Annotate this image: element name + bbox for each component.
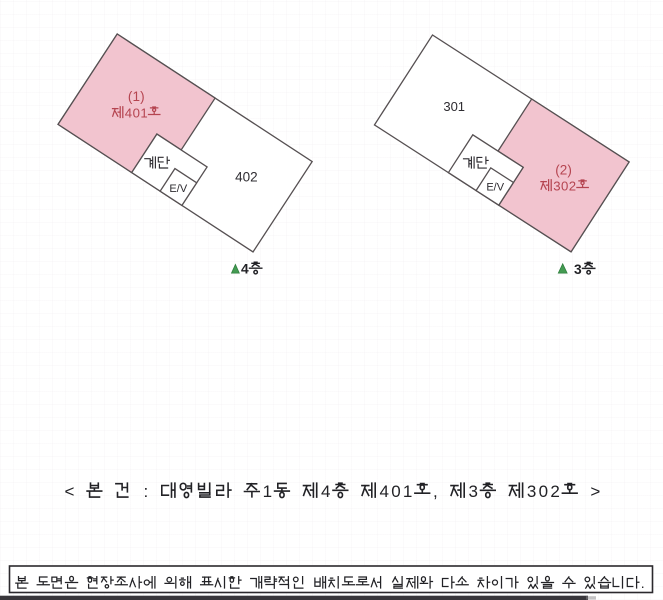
svg-text:): ) [140, 89, 145, 104]
svg-text:3: 3 [574, 262, 582, 277]
svg-text:E/V: E/V [486, 182, 504, 194]
svg-text:,: , [433, 482, 438, 501]
svg-text:0: 0 [133, 105, 140, 120]
svg-text:1: 1 [133, 89, 141, 104]
svg-text:.: . [641, 575, 645, 591]
svg-text::: : [144, 482, 149, 501]
svg-text:): ) [567, 163, 572, 178]
svg-text:3: 3 [527, 482, 536, 501]
svg-text:0: 0 [391, 482, 400, 501]
svg-text:E/V: E/V [169, 183, 187, 195]
svg-text:3: 3 [553, 178, 560, 193]
svg-text:3: 3 [469, 482, 478, 501]
svg-text:2: 2 [560, 163, 568, 178]
svg-text:4: 4 [241, 262, 249, 277]
svg-text:0: 0 [561, 178, 568, 193]
svg-text:<: < [65, 482, 75, 501]
svg-text:4: 4 [125, 105, 132, 120]
svg-text:402: 402 [235, 170, 258, 185]
svg-text:0: 0 [539, 482, 548, 501]
svg-text:4: 4 [321, 482, 330, 501]
svg-text:1: 1 [263, 482, 272, 501]
svg-text:>: > [590, 482, 600, 501]
svg-text:301: 301 [443, 99, 465, 114]
svg-text:1: 1 [140, 105, 147, 120]
svg-text:4: 4 [380, 482, 389, 501]
svg-text:2: 2 [569, 178, 576, 193]
svg-text:1: 1 [403, 482, 412, 501]
svg-text:2: 2 [550, 482, 559, 501]
